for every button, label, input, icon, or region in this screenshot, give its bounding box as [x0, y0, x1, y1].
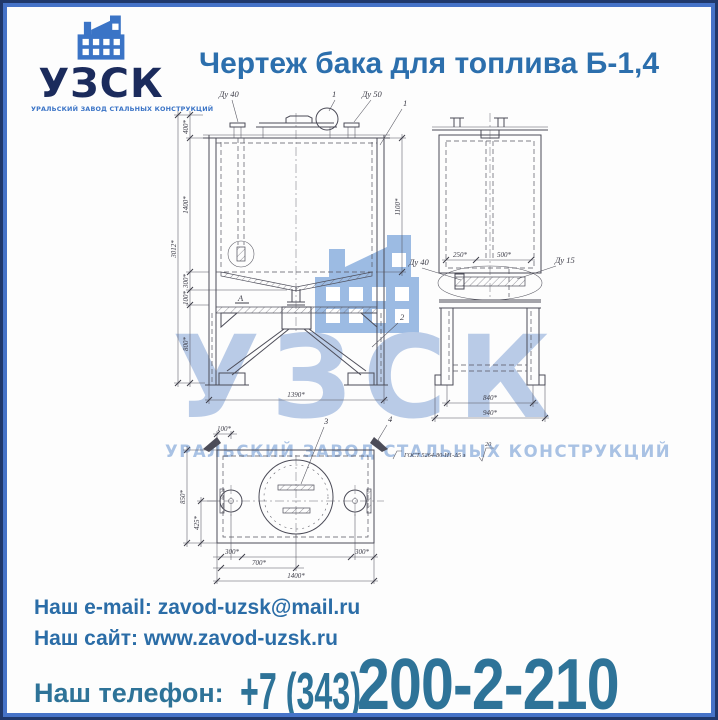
- phone-line: Наш телефон: +7 (343) 200-2-210: [34, 654, 676, 717]
- front-view: 400* 1400* 300* 100* 800* 3012* 1100* 13…: [170, 89, 407, 404]
- dim-label: 1400*: [182, 196, 190, 214]
- phone-prefix: +7 (343): [240, 668, 361, 717]
- email-line: Наш e-mail: zavod-uzsk@mail.ru: [34, 596, 360, 620]
- dim-label: 3012*: [170, 240, 178, 259]
- site-line: Наш сайт: www.zavod-uzsk.ru: [34, 627, 338, 651]
- site-value: www.zavod-uzsk.ru: [144, 627, 338, 650]
- dim-label: 500*: [497, 251, 512, 259]
- dim-label: 1390*: [287, 391, 305, 399]
- dim-label: 100*: [217, 425, 232, 433]
- side-view: 250* 500* 840*: [408, 113, 575, 422]
- logo-name: УЗСК: [31, 65, 171, 103]
- callout-2: 2: [400, 312, 405, 322]
- dim-label: 1100*: [394, 198, 402, 215]
- callout-dy40: Ду 40: [408, 257, 430, 267]
- phone-number: 200-2-210: [357, 654, 619, 717]
- site-label: Наш сайт:: [34, 627, 138, 650]
- dim-label: 840*: [483, 394, 498, 402]
- technical-drawing: 400* 1400* 300* 100* 800* 3012* 1100* 13…: [159, 87, 643, 599]
- callout-dy50: Ду 50: [361, 89, 383, 99]
- callout-3: 3: [323, 416, 328, 426]
- email-label: Наш e-mail:: [34, 596, 152, 619]
- dim-label: 700*: [252, 559, 267, 567]
- callout-1: 1: [403, 98, 407, 108]
- dim-label: 850*: [179, 490, 187, 505]
- dim-label: 250*: [453, 251, 468, 259]
- email-value: zavod-uzsk@mail.ru: [158, 596, 361, 619]
- weld-note: ГОСТ 5264-80-Н1-Δ5 э: [403, 452, 466, 459]
- flyer-page: УЗСК УРАЛЬСКИЙ ЗАВОД СТАЛЬНЫХ КОНСТРУКЦИ…: [0, 0, 718, 720]
- phone-label: Наш телефон:: [34, 678, 224, 717]
- callout-1: 1: [332, 89, 336, 99]
- callout-4: 4: [388, 414, 393, 424]
- callout-dy40: Ду 40: [218, 89, 240, 99]
- dim-label: 300*: [224, 548, 240, 556]
- dim-label: 300*: [354, 548, 370, 556]
- dim-label: 940*: [483, 409, 498, 417]
- flyer-inner: УЗСК УРАЛЬСКИЙ ЗАВОД СТАЛЬНЫХ КОНСТРУКЦИ…: [3, 3, 715, 717]
- company-logo: УЗСК УРАЛЬСКИЙ ЗАВОД СТАЛЬНЫХ КОНСТРУКЦИ…: [31, 15, 171, 113]
- dim-label: 100*: [182, 291, 190, 306]
- dim-label: 1400*: [287, 572, 305, 580]
- dim-label: 400*: [182, 120, 190, 135]
- plan-view: 100* 850* 425* 300* 30: [179, 414, 494, 584]
- dim-label: 425*: [193, 516, 201, 531]
- page-title: Чертеж бака для топлива Б-1,4: [199, 47, 715, 81]
- dim-label: 300*: [182, 274, 190, 290]
- callout-dy15: Ду 15: [554, 255, 575, 265]
- weld-note-value: 20: [485, 441, 492, 448]
- dim-label: 800*: [182, 337, 190, 352]
- logo-subtitle: УРАЛЬСКИЙ ЗАВОД СТАЛЬНЫХ КОНСТРУКЦИЙ: [31, 105, 171, 113]
- view-label-a: А: [237, 293, 244, 303]
